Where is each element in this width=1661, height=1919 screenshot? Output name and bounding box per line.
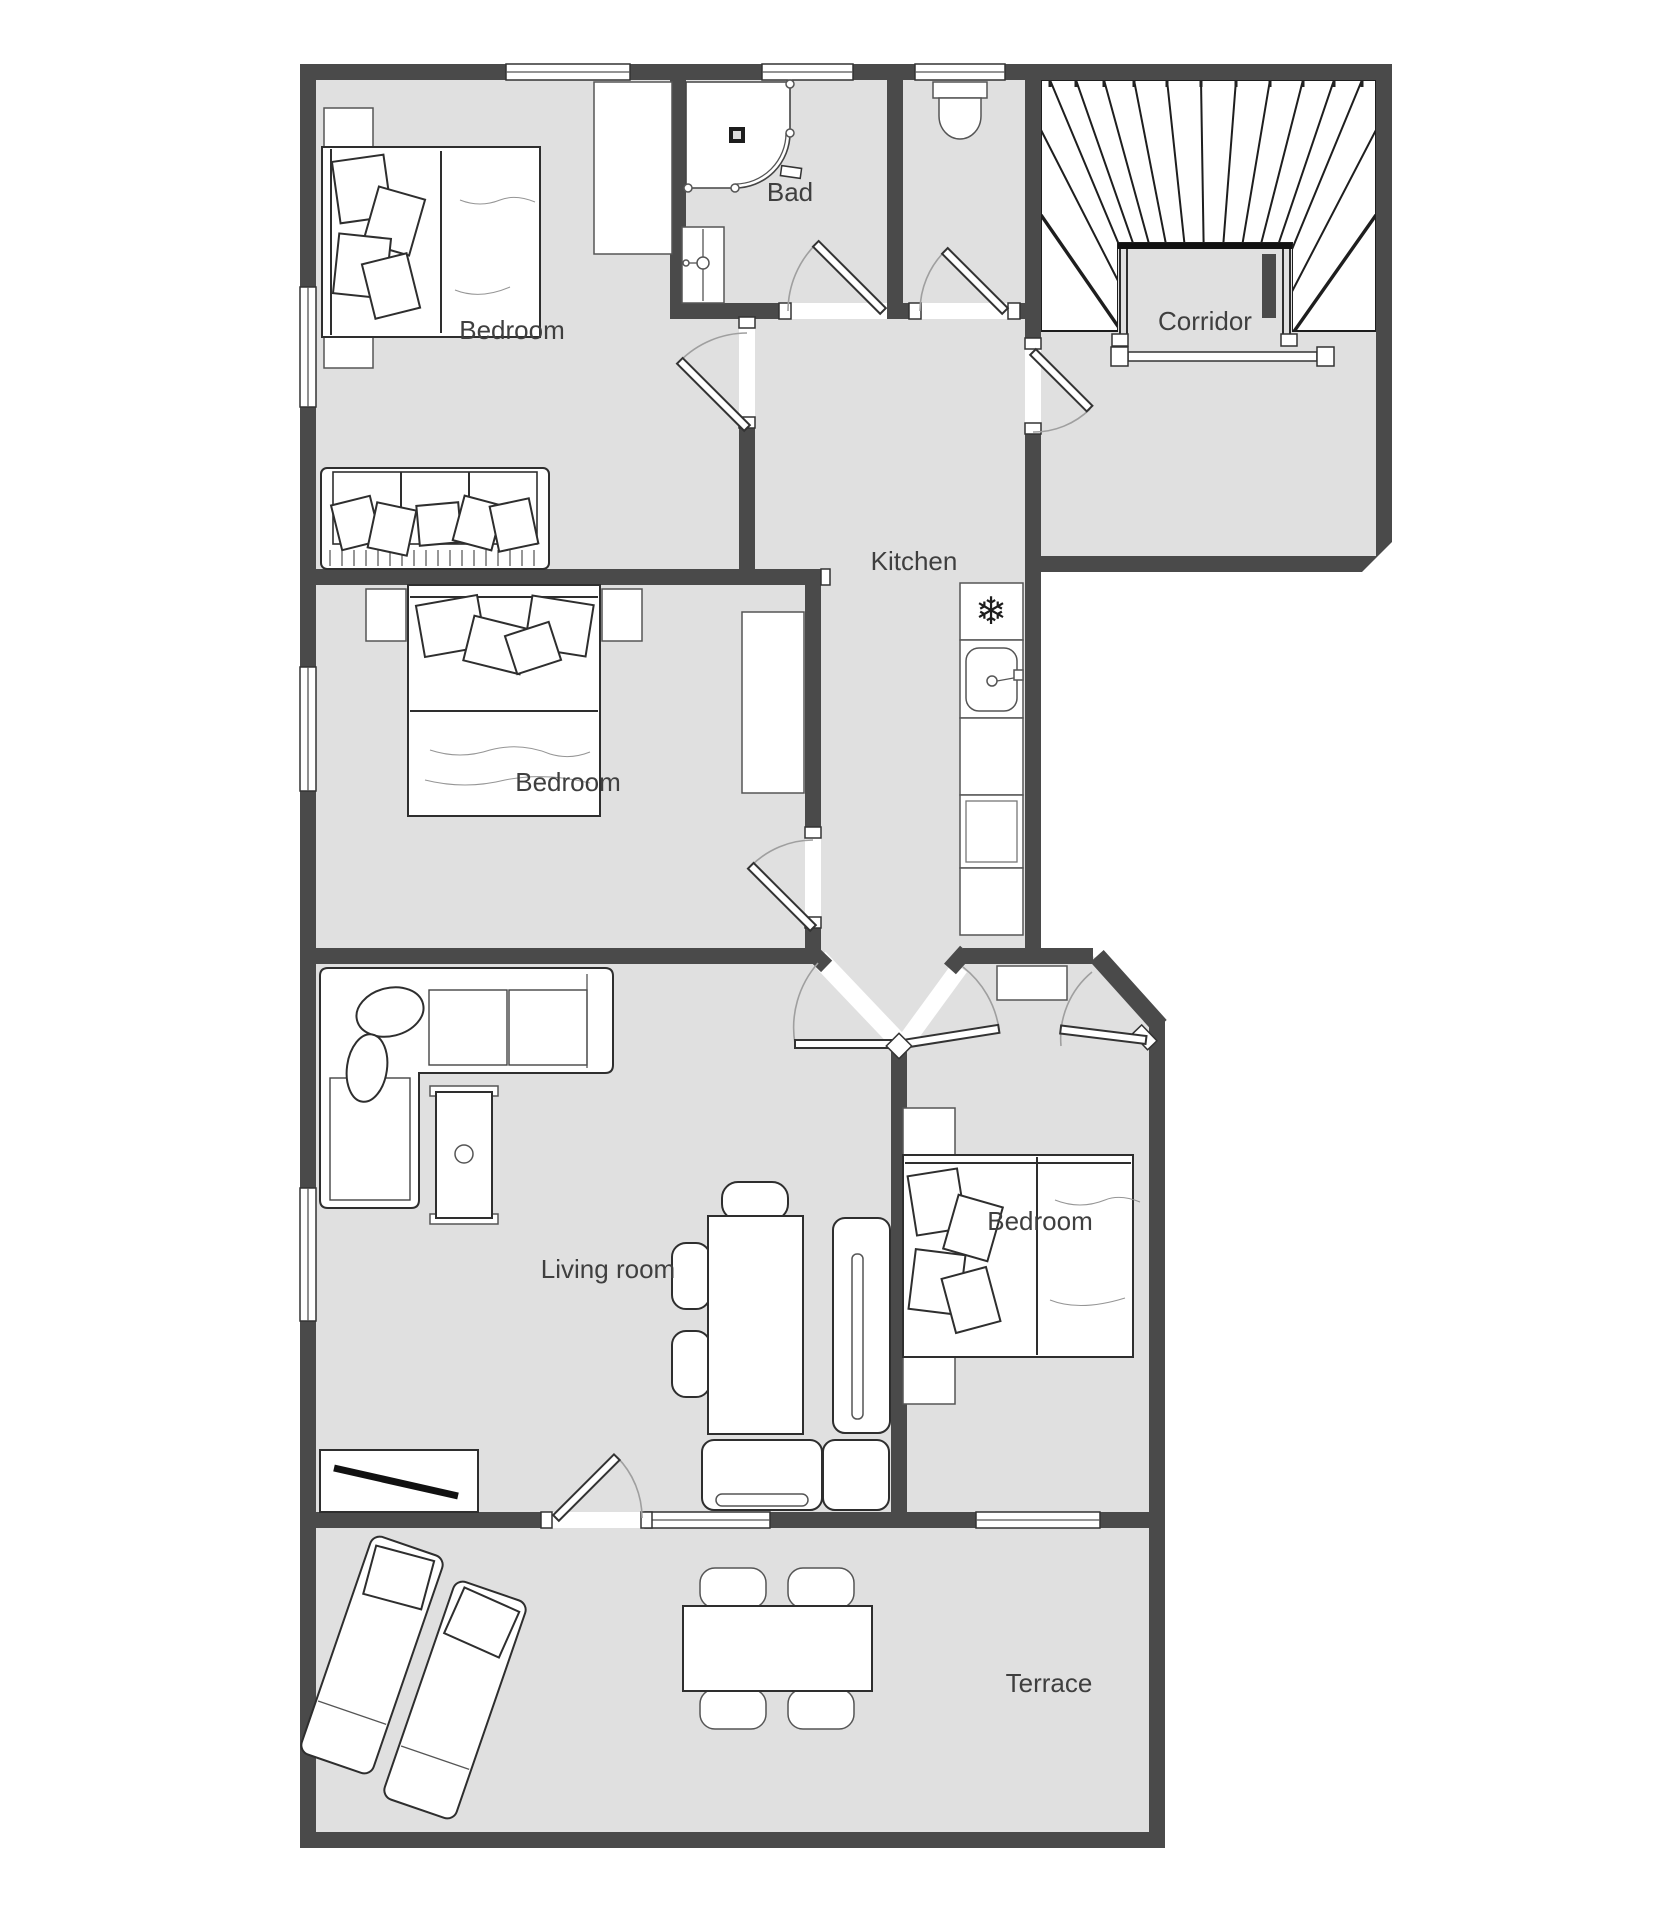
sideboard bbox=[742, 612, 804, 793]
nightstand bbox=[324, 108, 373, 148]
chair bbox=[788, 1568, 854, 1608]
tv-board bbox=[320, 1450, 478, 1512]
wall-terrace-bottom bbox=[300, 1832, 1165, 1848]
label-bedroom-right: Bedroom bbox=[987, 1206, 1093, 1236]
double-bed bbox=[322, 147, 540, 337]
floor-plan-page: ❄ bbox=[0, 0, 1661, 1919]
label-bedroom-middle: Bedroom bbox=[515, 767, 621, 797]
terrace-table bbox=[683, 1606, 872, 1691]
wall-kitchen-right bbox=[1025, 64, 1041, 948]
kitchen-sink bbox=[960, 640, 1023, 718]
appliance-unit bbox=[960, 795, 1023, 868]
window-living-left bbox=[300, 1188, 316, 1321]
counter-unit-2 bbox=[960, 868, 1023, 935]
label-bathroom: Bad bbox=[767, 177, 813, 207]
side-table bbox=[430, 1086, 498, 1224]
wall-right-lower bbox=[1149, 1020, 1165, 1848]
wardrobe bbox=[594, 82, 672, 254]
window-bedroom-top bbox=[506, 64, 630, 80]
wall-corridor-bottom bbox=[1041, 556, 1392, 572]
chair bbox=[672, 1243, 710, 1309]
pillow bbox=[490, 498, 539, 551]
label-living-room: Living room bbox=[541, 1254, 675, 1284]
counter-unit bbox=[960, 718, 1023, 795]
wall-bedroom-top-right-lower bbox=[739, 428, 755, 585]
wall-bedroom-middle-right bbox=[805, 585, 821, 838]
label-terrace: Terrace bbox=[1006, 1668, 1093, 1698]
label-corridor: Corridor bbox=[1158, 306, 1252, 336]
nightstand bbox=[366, 589, 406, 641]
label-bedroom-top: Bedroom bbox=[459, 315, 565, 345]
dining-table bbox=[708, 1216, 803, 1434]
wall-bedrooms-divider bbox=[300, 569, 830, 585]
window-bedroom-middle-left bbox=[300, 667, 316, 791]
chair bbox=[700, 1568, 766, 1608]
wall-kitchen-bottom bbox=[963, 948, 1093, 964]
window-bedroom-right-terrace bbox=[976, 1512, 1100, 1528]
kitchen-counter: ❄ bbox=[960, 583, 1023, 935]
wall-living-top bbox=[300, 948, 808, 964]
chair bbox=[672, 1331, 710, 1397]
floor-plan: ❄ bbox=[0, 0, 1661, 1919]
sofa-bedroom-top bbox=[321, 468, 549, 569]
pillow bbox=[368, 502, 417, 555]
label-kitchen: Kitchen bbox=[871, 546, 958, 576]
bath-sink bbox=[682, 227, 724, 303]
nightstand bbox=[903, 1357, 955, 1404]
landing-wall-stub bbox=[1262, 254, 1276, 318]
window-living-terrace bbox=[645, 1512, 770, 1528]
wall-right-upper bbox=[1376, 64, 1392, 572]
chair bbox=[700, 1689, 766, 1729]
window-wc bbox=[915, 64, 1005, 80]
chair bbox=[788, 1689, 854, 1729]
vestibule-cabinet bbox=[997, 966, 1067, 1000]
nightstand bbox=[903, 1108, 955, 1155]
wall-bath-wc-divider bbox=[887, 80, 903, 319]
nightstand bbox=[602, 589, 642, 641]
opening-jamb-kitchen bbox=[821, 569, 830, 585]
window-bath bbox=[762, 64, 853, 80]
window-bedroom-top-left bbox=[300, 287, 316, 407]
shower bbox=[684, 80, 802, 192]
chair bbox=[722, 1182, 788, 1220]
freezer-icon: ❄ bbox=[975, 591, 1007, 633]
double-bed bbox=[903, 1155, 1140, 1357]
